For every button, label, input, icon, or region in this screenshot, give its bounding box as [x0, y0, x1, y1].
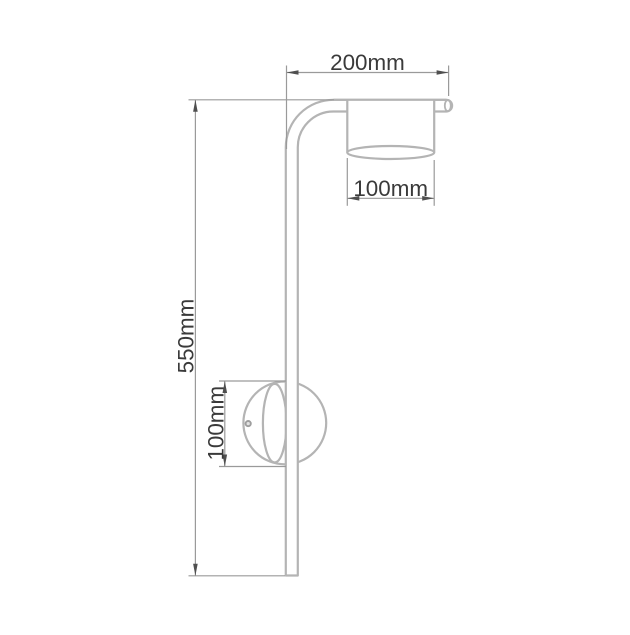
- svg-text:100mm: 100mm: [203, 386, 228, 461]
- svg-text:550mm: 550mm: [173, 299, 198, 374]
- svg-text:200mm: 200mm: [330, 50, 405, 75]
- svg-text:100mm: 100mm: [353, 176, 428, 201]
